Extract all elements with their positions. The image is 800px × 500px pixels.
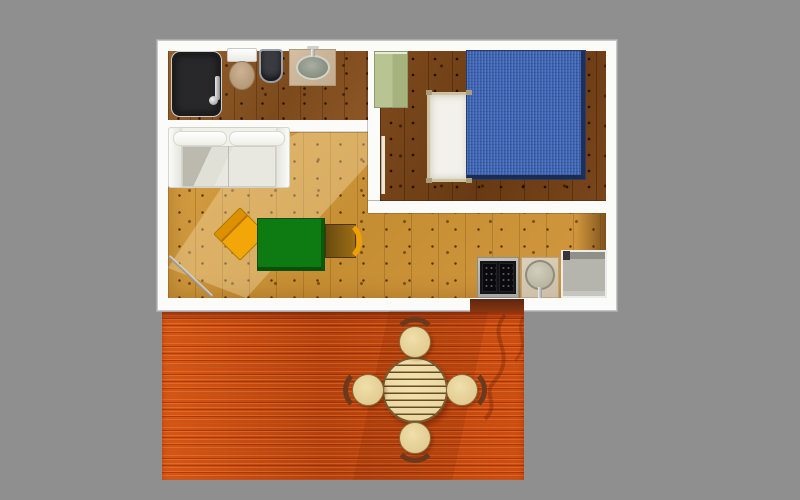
toilet-bowl — [229, 61, 255, 90]
wall-bedroom-south — [368, 201, 606, 213]
washbasin-bowl — [296, 55, 330, 80]
bed-post — [466, 178, 472, 183]
bedroom-open-door — [381, 136, 385, 194]
round-dining-table — [382, 357, 448, 423]
wardrobe-green — [374, 51, 408, 108]
sofa-seat-divider — [228, 146, 229, 187]
kitchen-sink-faucet-icon — [538, 287, 542, 298]
terrace-stool — [399, 422, 431, 454]
single-bed — [427, 92, 471, 182]
stove-burner — [499, 263, 514, 292]
bed-post — [426, 178, 432, 183]
side-chair-backrest — [318, 219, 362, 263]
stove-burner — [482, 263, 497, 292]
refrigerator-hinge-icon — [563, 251, 570, 260]
sofa-back-cushion — [229, 131, 285, 146]
sofa-seat — [182, 146, 276, 187]
sofa-back-cushion — [173, 131, 227, 146]
toilet-tank — [227, 48, 257, 62]
floor-plan-render — [0, 0, 800, 500]
bathtub-knob-icon — [209, 96, 218, 105]
double-bed-blue — [467, 51, 585, 179]
bed-post — [426, 90, 432, 95]
terrace-stool — [352, 374, 384, 406]
deck-door-opening — [470, 299, 524, 312]
bidet — [259, 49, 283, 83]
desk-green — [258, 219, 324, 270]
kitchen-sink-bowl — [525, 260, 555, 290]
bed-post — [466, 90, 472, 95]
terrace-stool — [399, 326, 431, 358]
washbasin-faucet-handle-icon — [307, 46, 319, 49]
terrace-stool — [446, 374, 478, 406]
